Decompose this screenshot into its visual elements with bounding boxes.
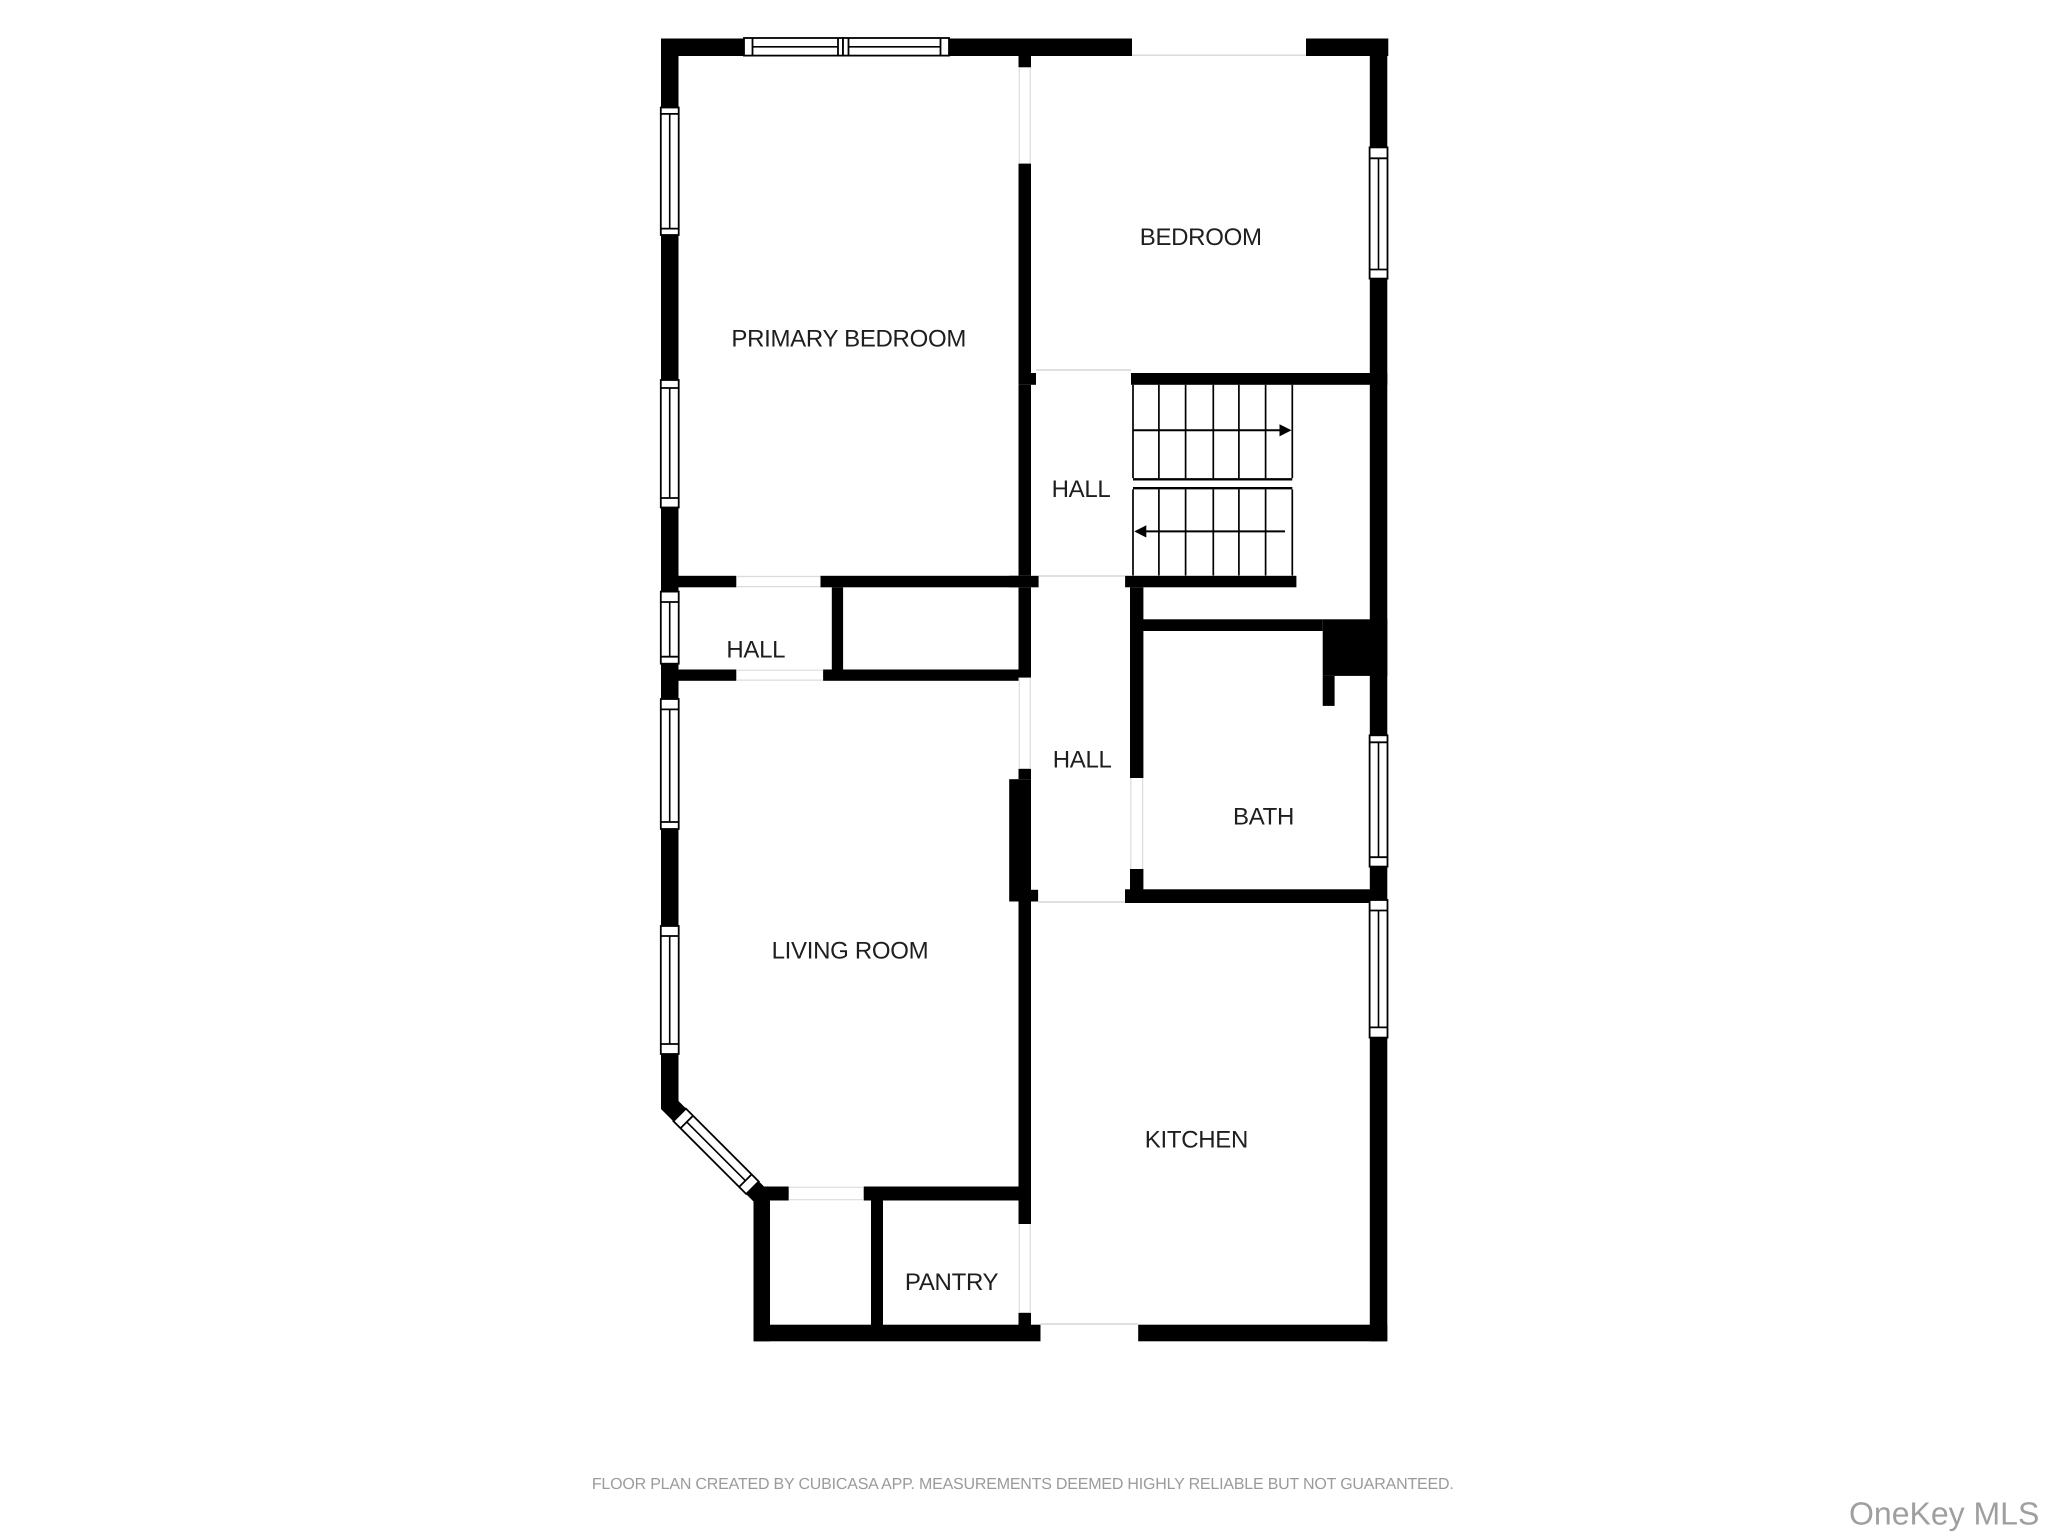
svg-text:PANTRY: PANTRY [905,1269,999,1296]
svg-text:HALL: HALL [1053,747,1112,774]
svg-text:PRIMARY BEDROOM: PRIMARY BEDROOM [731,326,966,353]
svg-text:HALL: HALL [1052,476,1111,503]
svg-text:KITCHEN: KITCHEN [1145,1127,1248,1154]
svg-text:LIVING ROOM: LIVING ROOM [772,938,929,965]
svg-text:HALL: HALL [726,637,785,664]
svg-text:BATH: BATH [1233,804,1294,831]
svg-text:OneKey MLS: OneKey MLS [1849,1496,2039,1532]
svg-text:BEDROOM: BEDROOM [1140,224,1262,251]
svg-text:FLOOR PLAN CREATED BY CUBICASA: FLOOR PLAN CREATED BY CUBICASA APP. MEAS… [592,1476,1454,1493]
